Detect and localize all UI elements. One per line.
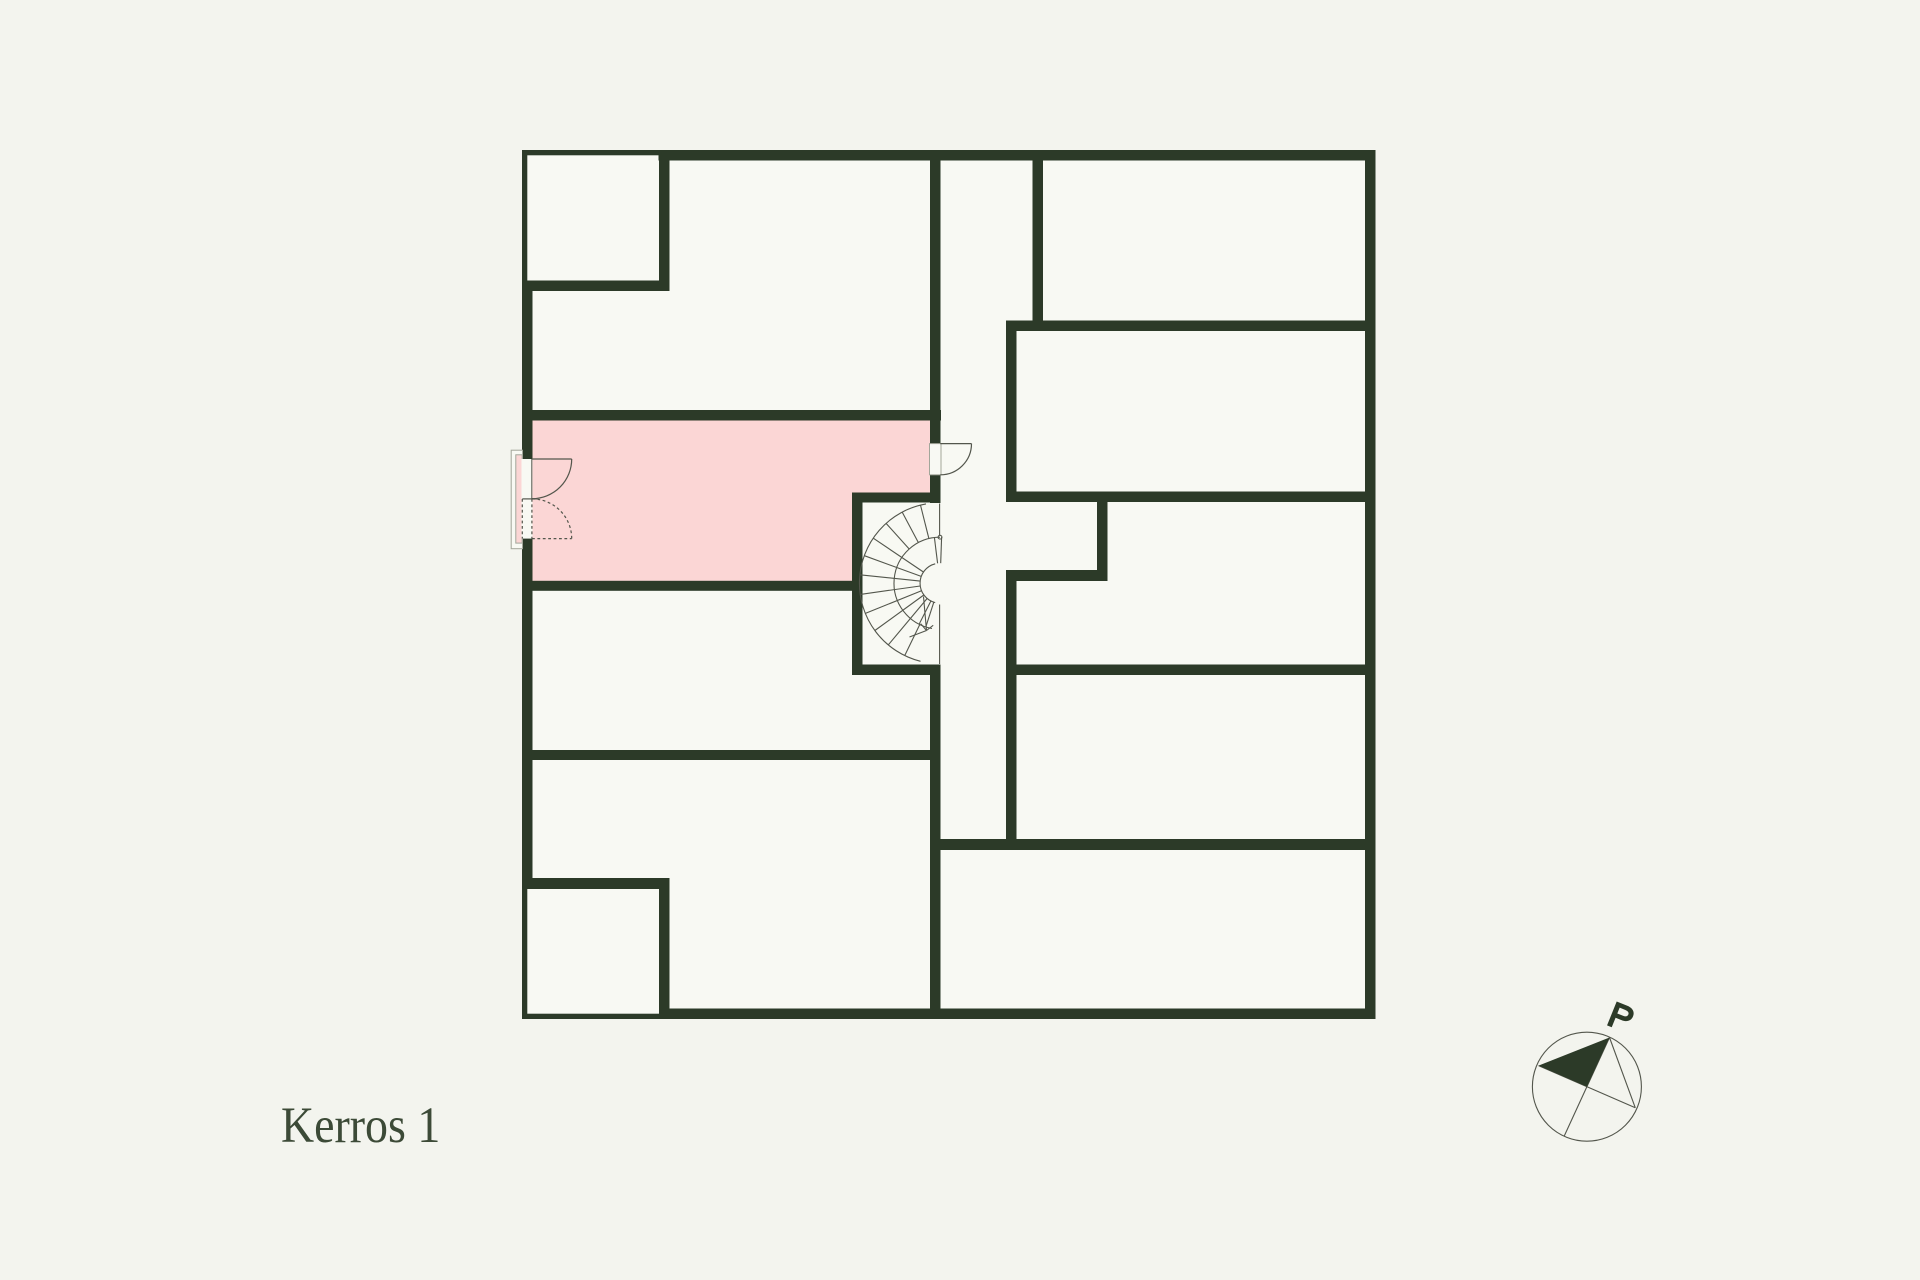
svg-text:Kerros 1: Kerros 1 (281, 1098, 440, 1154)
